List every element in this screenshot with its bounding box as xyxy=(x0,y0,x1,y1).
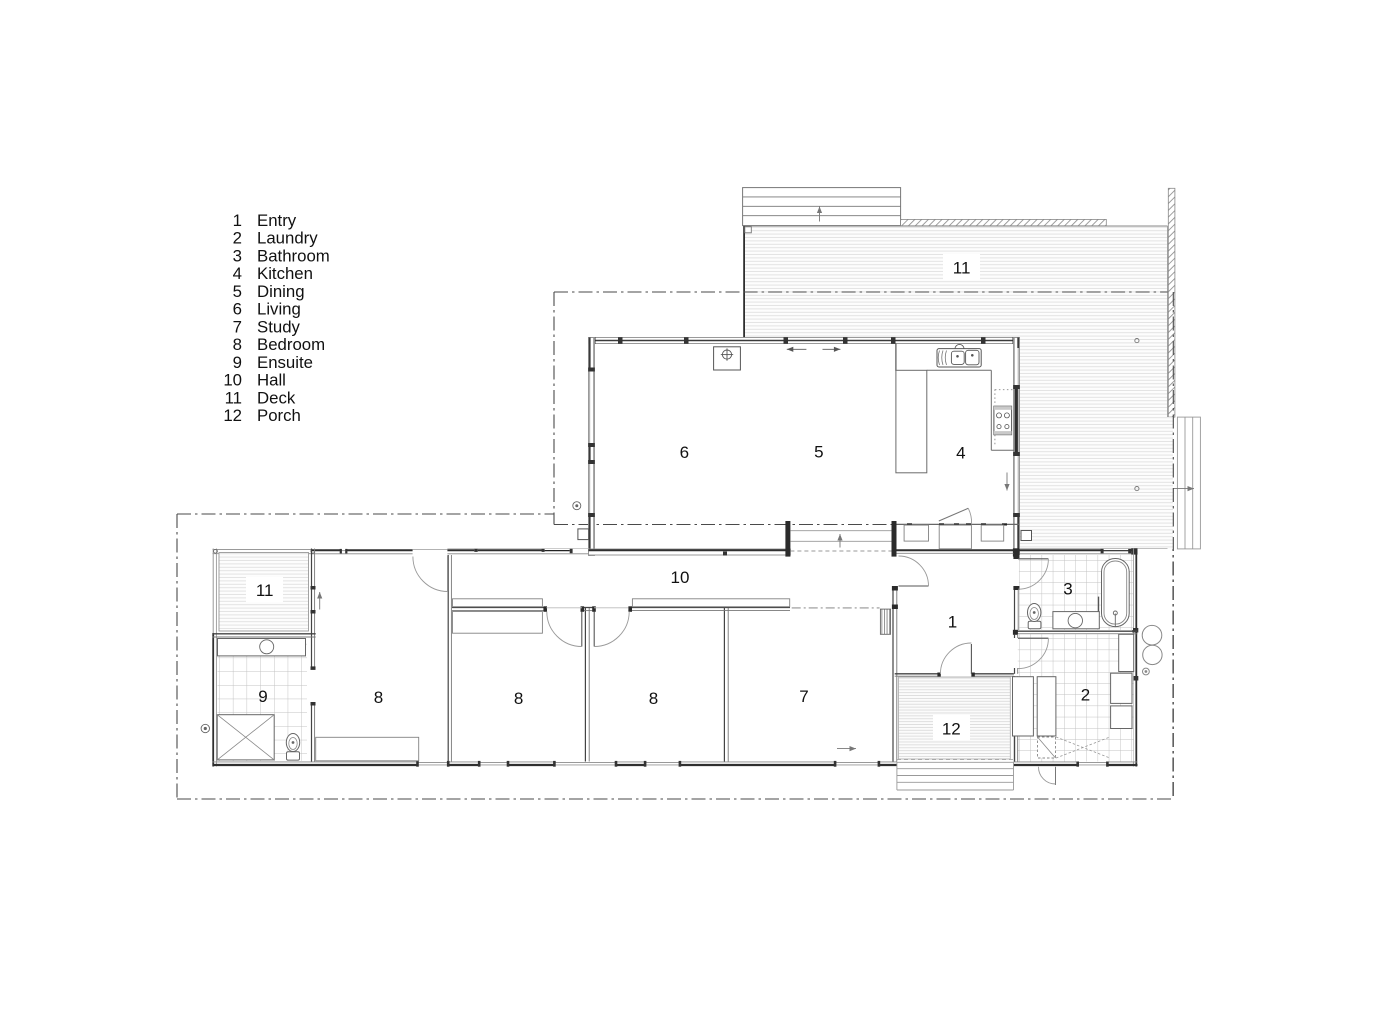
svg-text:10: 10 xyxy=(223,371,242,390)
svg-text:6: 6 xyxy=(233,300,242,319)
svg-text:Hall: Hall xyxy=(257,371,286,390)
svg-text:Ensuite: Ensuite xyxy=(257,353,313,372)
svg-text:Porch: Porch xyxy=(257,406,301,425)
svg-text:11: 11 xyxy=(953,259,971,278)
svg-text:2: 2 xyxy=(1081,686,1090,705)
svg-text:Living: Living xyxy=(257,300,301,319)
svg-text:Study: Study xyxy=(257,317,301,336)
svg-text:11: 11 xyxy=(256,581,274,600)
svg-text:8: 8 xyxy=(649,689,658,708)
svg-text:6: 6 xyxy=(680,443,689,462)
svg-text:11: 11 xyxy=(225,388,242,407)
svg-text:Bathroom: Bathroom xyxy=(257,247,330,266)
svg-text:4: 4 xyxy=(956,444,965,463)
svg-text:8: 8 xyxy=(233,335,242,354)
svg-text:3: 3 xyxy=(1063,580,1072,599)
svg-text:8: 8 xyxy=(514,689,523,708)
svg-text:1: 1 xyxy=(948,613,957,632)
svg-text:Kitchen: Kitchen xyxy=(257,264,313,283)
svg-text:8: 8 xyxy=(374,688,383,707)
svg-text:9: 9 xyxy=(258,687,267,706)
svg-text:9: 9 xyxy=(233,353,242,372)
svg-text:Dining: Dining xyxy=(257,282,305,301)
svg-text:7: 7 xyxy=(233,317,242,336)
svg-text:5: 5 xyxy=(814,443,823,462)
svg-text:10: 10 xyxy=(671,568,690,587)
svg-text:12: 12 xyxy=(223,406,242,425)
svg-text:Laundry: Laundry xyxy=(257,229,318,248)
svg-text:Bedroom: Bedroom xyxy=(257,335,325,354)
svg-text:Deck: Deck xyxy=(257,388,296,407)
svg-text:Entry: Entry xyxy=(257,211,297,230)
svg-text:12: 12 xyxy=(942,720,961,739)
svg-text:7: 7 xyxy=(799,687,808,706)
svg-text:3: 3 xyxy=(233,247,242,266)
svg-text:4: 4 xyxy=(233,264,242,283)
svg-text:2: 2 xyxy=(233,229,242,248)
svg-text:1: 1 xyxy=(233,211,242,230)
svg-text:5: 5 xyxy=(233,282,242,301)
